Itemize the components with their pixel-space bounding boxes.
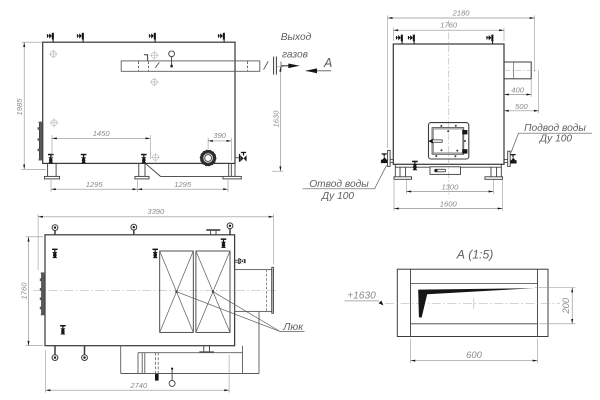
svg-text:3390: 3390 bbox=[147, 207, 165, 216]
svg-text:газов: газов bbox=[282, 50, 309, 61]
svg-text:400: 400 bbox=[511, 86, 524, 95]
svg-text:Выход: Выход bbox=[281, 32, 312, 43]
svg-text:Люк: Люк bbox=[282, 322, 304, 333]
svg-text:200: 200 bbox=[560, 297, 571, 314]
svg-text:2740: 2740 bbox=[129, 381, 148, 390]
svg-text:А (1:5): А (1:5) bbox=[456, 248, 494, 262]
svg-text:500: 500 bbox=[515, 102, 528, 111]
svg-text:1600: 1600 bbox=[440, 199, 458, 208]
svg-text:Ду 100: Ду 100 bbox=[539, 134, 573, 145]
svg-text:2180: 2180 bbox=[452, 8, 471, 17]
svg-text:+1630: +1630 bbox=[347, 291, 376, 302]
svg-text:1760: 1760 bbox=[20, 282, 29, 300]
svg-text:Подвод воды: Подвод воды bbox=[524, 123, 586, 134]
svg-text:1985: 1985 bbox=[15, 98, 24, 116]
svg-text:390: 390 bbox=[213, 131, 226, 140]
svg-text:1630: 1630 bbox=[271, 110, 280, 128]
svg-text:Отвод воды: Отвод воды bbox=[309, 179, 369, 190]
svg-text:1450: 1450 bbox=[93, 129, 111, 138]
svg-text:1295: 1295 bbox=[174, 180, 192, 189]
svg-text:А: А bbox=[323, 56, 332, 70]
svg-text:1295: 1295 bbox=[86, 180, 104, 189]
svg-text:1760: 1760 bbox=[440, 21, 458, 30]
svg-text:1300: 1300 bbox=[441, 183, 459, 192]
svg-text:Ду 100: Ду 100 bbox=[321, 191, 355, 202]
svg-text:600: 600 bbox=[466, 349, 482, 360]
